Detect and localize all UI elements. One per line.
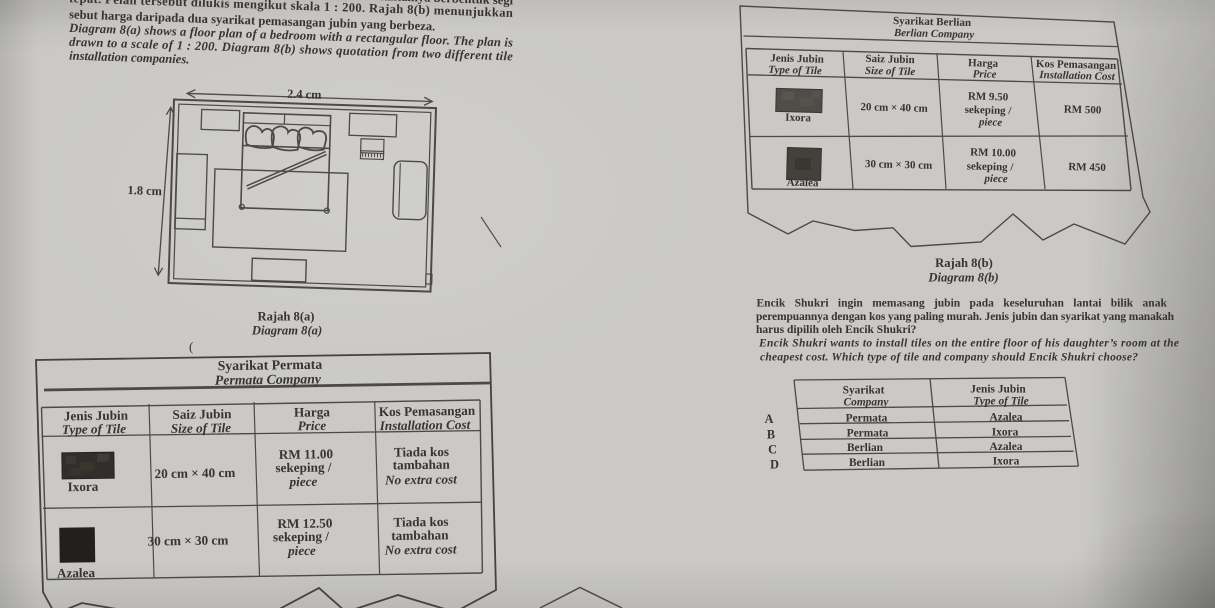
svg-text:RM 9.50: RM 9.50 <box>968 90 1009 103</box>
svg-text:20 cm × 40 cm: 20 cm × 40 cm <box>860 101 928 115</box>
svg-text:Encik Shukri wants to install: Encik Shukri wants to install tiles on t… <box>758 337 1179 349</box>
svg-text:Jenis Jubin: Jenis Jubin <box>970 384 1026 396</box>
svg-text:Price: Price <box>298 418 327 433</box>
svg-text:Encik Shukri ingin memasang ju: Encik Shukri ingin memasang jubin pada k… <box>757 298 1168 310</box>
svg-text:1.8 cm: 1.8 cm <box>127 183 162 198</box>
svg-text:Berlian Company: Berlian Company <box>893 27 975 41</box>
svg-text:Type of Tile: Type of Tile <box>973 396 1028 408</box>
svg-text:Azalea: Azalea <box>990 441 1023 453</box>
svg-text:Type of Tile: Type of Tile <box>768 64 822 77</box>
svg-text:piece: piece <box>983 173 1008 186</box>
svg-text:tambahan: tambahan <box>393 457 451 473</box>
svg-text:30 cm × 30 cm: 30 cm × 30 cm <box>865 158 933 172</box>
svg-text:Diagram 8(b): Diagram 8(b) <box>927 271 998 285</box>
svg-text:Diagram 8(a): Diagram 8(a) <box>251 324 322 338</box>
svg-text:Azalea: Azalea <box>787 177 820 190</box>
svg-text:sekeping /: sekeping / <box>275 459 332 475</box>
svg-text:sekeping /: sekeping / <box>967 160 1015 173</box>
svg-text:RM 450: RM 450 <box>1068 161 1106 174</box>
svg-text:Type of Tile: Type of Tile <box>62 421 127 437</box>
svg-text:Installation Cost: Installation Cost <box>1038 69 1116 83</box>
svg-text:Berlian: Berlian <box>849 457 886 469</box>
svg-text:Berlian: Berlian <box>847 442 884 454</box>
svg-text:sekeping /: sekeping / <box>965 104 1013 117</box>
svg-text:(: ( <box>189 339 193 354</box>
svg-text:30 cm × 30 cm: 30 cm × 30 cm <box>147 532 228 548</box>
svg-text:2.4 cm: 2.4 cm <box>287 87 322 102</box>
svg-text:Syarikat: Syarikat <box>843 385 885 397</box>
svg-text:C: C <box>768 443 777 457</box>
svg-text:perempuannya dengan kos yang p: perempuannya dengan kos yang paling mura… <box>756 311 1175 323</box>
svg-text:piece: piece <box>287 543 316 558</box>
svg-text:Rajah 8(a): Rajah 8(a) <box>257 310 314 324</box>
svg-text:Ixora: Ixora <box>993 456 1020 468</box>
svg-text:piece: piece <box>288 474 317 489</box>
svg-text:No extra cost: No extra cost <box>384 471 457 487</box>
svg-text:RM 500: RM 500 <box>1064 104 1102 117</box>
svg-text:cheapest cost. Which type of t: cheapest cost. Which type of tile and co… <box>760 351 1138 363</box>
svg-text:Size of Tile: Size of Tile <box>171 420 232 436</box>
svg-text:Azalea: Azalea <box>57 565 96 581</box>
svg-text:harus dipilih oleh Encik Shukr: harus dipilih oleh Encik Shukri? <box>756 324 917 336</box>
svg-text:Rajah 8(b): Rajah 8(b) <box>935 256 993 270</box>
svg-text:Size of Tile: Size of Tile <box>865 65 916 78</box>
svg-text:piece: piece <box>978 116 1003 129</box>
svg-text:Price: Price <box>973 68 997 81</box>
svg-text:Ixora: Ixora <box>67 479 98 494</box>
svg-text:Ixora: Ixora <box>992 427 1019 439</box>
svg-text:sekeping /: sekeping / <box>273 529 330 545</box>
svg-text:Installation Cost: Installation Cost <box>379 417 471 433</box>
svg-text:Azalea: Azalea <box>990 412 1023 424</box>
svg-text:D: D <box>770 458 779 472</box>
svg-text:Company: Company <box>844 397 890 409</box>
svg-text:20 cm × 40 cm: 20 cm × 40 cm <box>154 465 235 481</box>
svg-text:Permata Company: Permata Company <box>215 371 322 387</box>
svg-text:A: A <box>765 412 774 426</box>
svg-text:Permata: Permata <box>847 428 889 440</box>
svg-text:RM 10.00: RM 10.00 <box>970 146 1017 159</box>
svg-text:No extra cost: No extra cost <box>384 541 457 557</box>
svg-text:B: B <box>767 428 775 442</box>
svg-text:Ixora: Ixora <box>785 112 811 125</box>
svg-text:installation companies.: installation companies. <box>69 49 190 67</box>
svg-text:Permata: Permata <box>846 413 888 425</box>
